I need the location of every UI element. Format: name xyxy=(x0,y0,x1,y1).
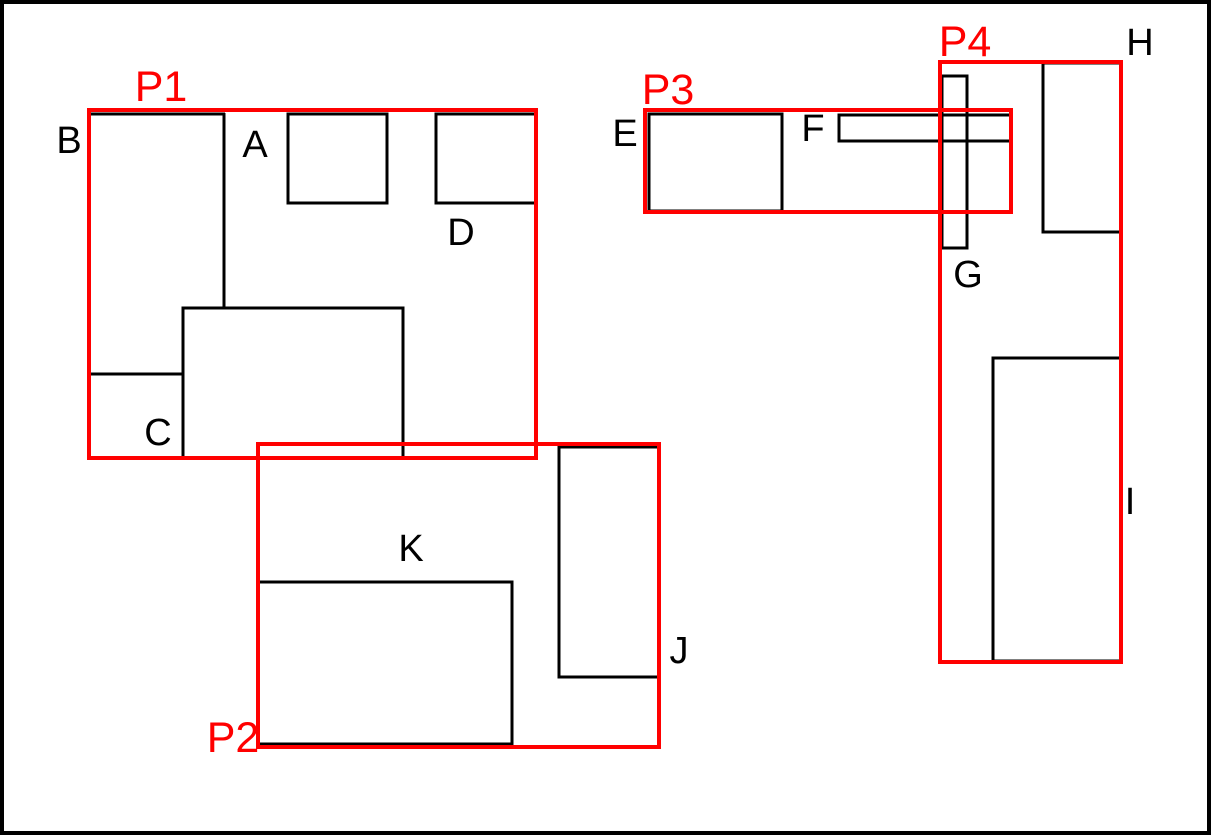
rect-e xyxy=(649,114,782,211)
label-b: B xyxy=(56,120,81,162)
region-p3 xyxy=(645,110,1011,212)
label-i: I xyxy=(1125,481,1136,523)
packing-diagram: B A C D K J E F G H I P1 P2 P3 P4 xyxy=(0,0,1211,835)
rect-f xyxy=(839,115,1011,141)
label-c: C xyxy=(144,412,171,454)
label-p1: P1 xyxy=(135,63,188,111)
label-e: E xyxy=(612,113,637,155)
label-k: K xyxy=(398,528,423,570)
rect-d xyxy=(436,114,536,203)
region-p1 xyxy=(89,110,536,458)
label-p2: P2 xyxy=(207,714,260,762)
label-j: J xyxy=(670,630,689,672)
item-labels-group: B A C D K J E F G H I xyxy=(56,22,1153,672)
label-d: D xyxy=(447,212,474,254)
rect-a xyxy=(288,114,387,203)
rect-k xyxy=(258,582,512,744)
rect-j xyxy=(559,447,659,677)
diagram-canvas: B A C D K J E F G H I P1 P2 P3 P4 xyxy=(0,0,1211,835)
label-p4: P4 xyxy=(939,18,992,66)
rect-g xyxy=(942,76,967,248)
label-p3: P3 xyxy=(642,66,695,114)
region-p2 xyxy=(258,444,659,747)
label-g: G xyxy=(953,254,983,296)
rect-i xyxy=(993,358,1121,661)
label-a: A xyxy=(242,124,268,166)
rect-h xyxy=(1043,63,1121,232)
label-h: H xyxy=(1126,22,1153,64)
rect-middle xyxy=(183,308,403,458)
black-shapes-group xyxy=(2,2,1209,833)
label-f: F xyxy=(801,108,824,150)
